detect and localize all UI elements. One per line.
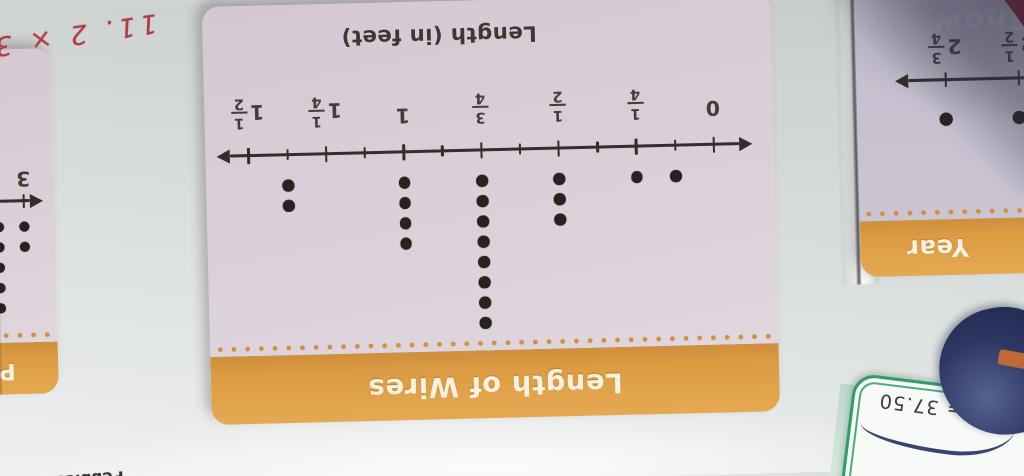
tick-label-fraction: 12: [230, 95, 247, 130]
tick-label-fraction: 34: [472, 89, 489, 124]
axis-tick: [674, 140, 677, 151]
data-dot: [479, 317, 491, 329]
tick-label: 3: [16, 169, 31, 190]
data-dot: [0, 242, 5, 253]
tick-label-whole: 1: [250, 102, 265, 123]
data-dot: [399, 197, 411, 209]
pet-line-plot: 3: [0, 48, 59, 396]
axis-tick: [247, 148, 250, 164]
length-of-wires-line-plot: 01412341114112: [202, 0, 780, 425]
axis-tick: [402, 144, 405, 160]
data-dot: [0, 222, 4, 233]
axis-tick: [519, 144, 522, 155]
hand-shadow: [792, 0, 1024, 201]
data-dot: [476, 175, 488, 187]
tick-label: 114: [308, 93, 342, 128]
data-dot: [399, 217, 411, 229]
tick-label-whole: 1: [327, 100, 342, 121]
tick-label-fraction: 14: [627, 86, 644, 121]
fraction-numerator: 1: [308, 110, 325, 129]
tick-label-whole: 0: [706, 98, 721, 119]
fraction-numerator: 1: [627, 102, 644, 121]
data-dot: [0, 283, 6, 294]
axis-title: Length (in feet): [341, 21, 537, 50]
axis-tick: [635, 138, 638, 154]
fraction-denominator: 4: [630, 86, 641, 102]
axis-arrow-left-icon: [739, 137, 753, 152]
tick-label: 1: [396, 105, 411, 126]
axis-tick: [441, 146, 444, 157]
tick-label-whole: 3: [16, 169, 31, 190]
data-dot: [477, 215, 489, 227]
tick-label-fraction: 14: [308, 93, 325, 128]
axis-line: [230, 143, 739, 158]
data-dot: [670, 170, 682, 182]
fraction-numerator: 1: [549, 104, 566, 123]
book-page-photo: O = 37.50 Year 212234 Show Pet 3 Length: [0, 0, 1024, 476]
page-scene: O = 37.50 Year 212234 Show Pet 3 Length: [0, 0, 1024, 476]
data-dot: [400, 238, 412, 250]
length-of-wires-card: Length of Wires 01412341114112 Length (i…: [202, 0, 780, 425]
data-dot: [631, 171, 643, 183]
tick-label-whole: 1: [396, 105, 411, 126]
data-dot: [282, 180, 294, 192]
pet-line-plot-card: Pet 3: [0, 48, 59, 396]
data-dot: [478, 256, 490, 268]
data-dot: [283, 200, 295, 212]
fraction-denominator: 2: [552, 88, 563, 104]
data-dot: [477, 195, 489, 207]
tick-label: 0: [706, 98, 721, 119]
fraction-denominator: 2: [233, 95, 244, 111]
data-dot: [478, 276, 490, 288]
data-dot: [479, 297, 491, 309]
data-dot: [0, 262, 5, 273]
axis-line: [0, 200, 30, 206]
axis-tick: [480, 142, 483, 158]
fraction-numerator: 1: [231, 111, 248, 130]
data-dot: [554, 193, 566, 205]
axis-arrow-right-icon: [216, 149, 230, 164]
tick-label: 14: [627, 86, 644, 121]
data-dot: [19, 241, 30, 252]
data-dot: [554, 173, 566, 185]
tick-label: 34: [472, 89, 489, 124]
data-dot: [477, 236, 489, 248]
data-dot: [19, 221, 30, 232]
data-dot: [398, 177, 410, 189]
tick-label: 112: [230, 95, 264, 130]
data-dot: [555, 214, 567, 226]
tick-label: 12: [549, 87, 566, 122]
fraction-denominator: 4: [475, 89, 486, 105]
red-handwriting: 11. 2 × 3: [0, 7, 159, 62]
axis-tick: [596, 142, 599, 153]
tick-label-fraction: 12: [549, 87, 566, 122]
fraction-denominator: 4: [311, 93, 322, 109]
axis-tick: [286, 150, 289, 161]
fraction-numerator: 3: [472, 106, 489, 125]
axis-arrow-left-icon: [30, 194, 44, 209]
